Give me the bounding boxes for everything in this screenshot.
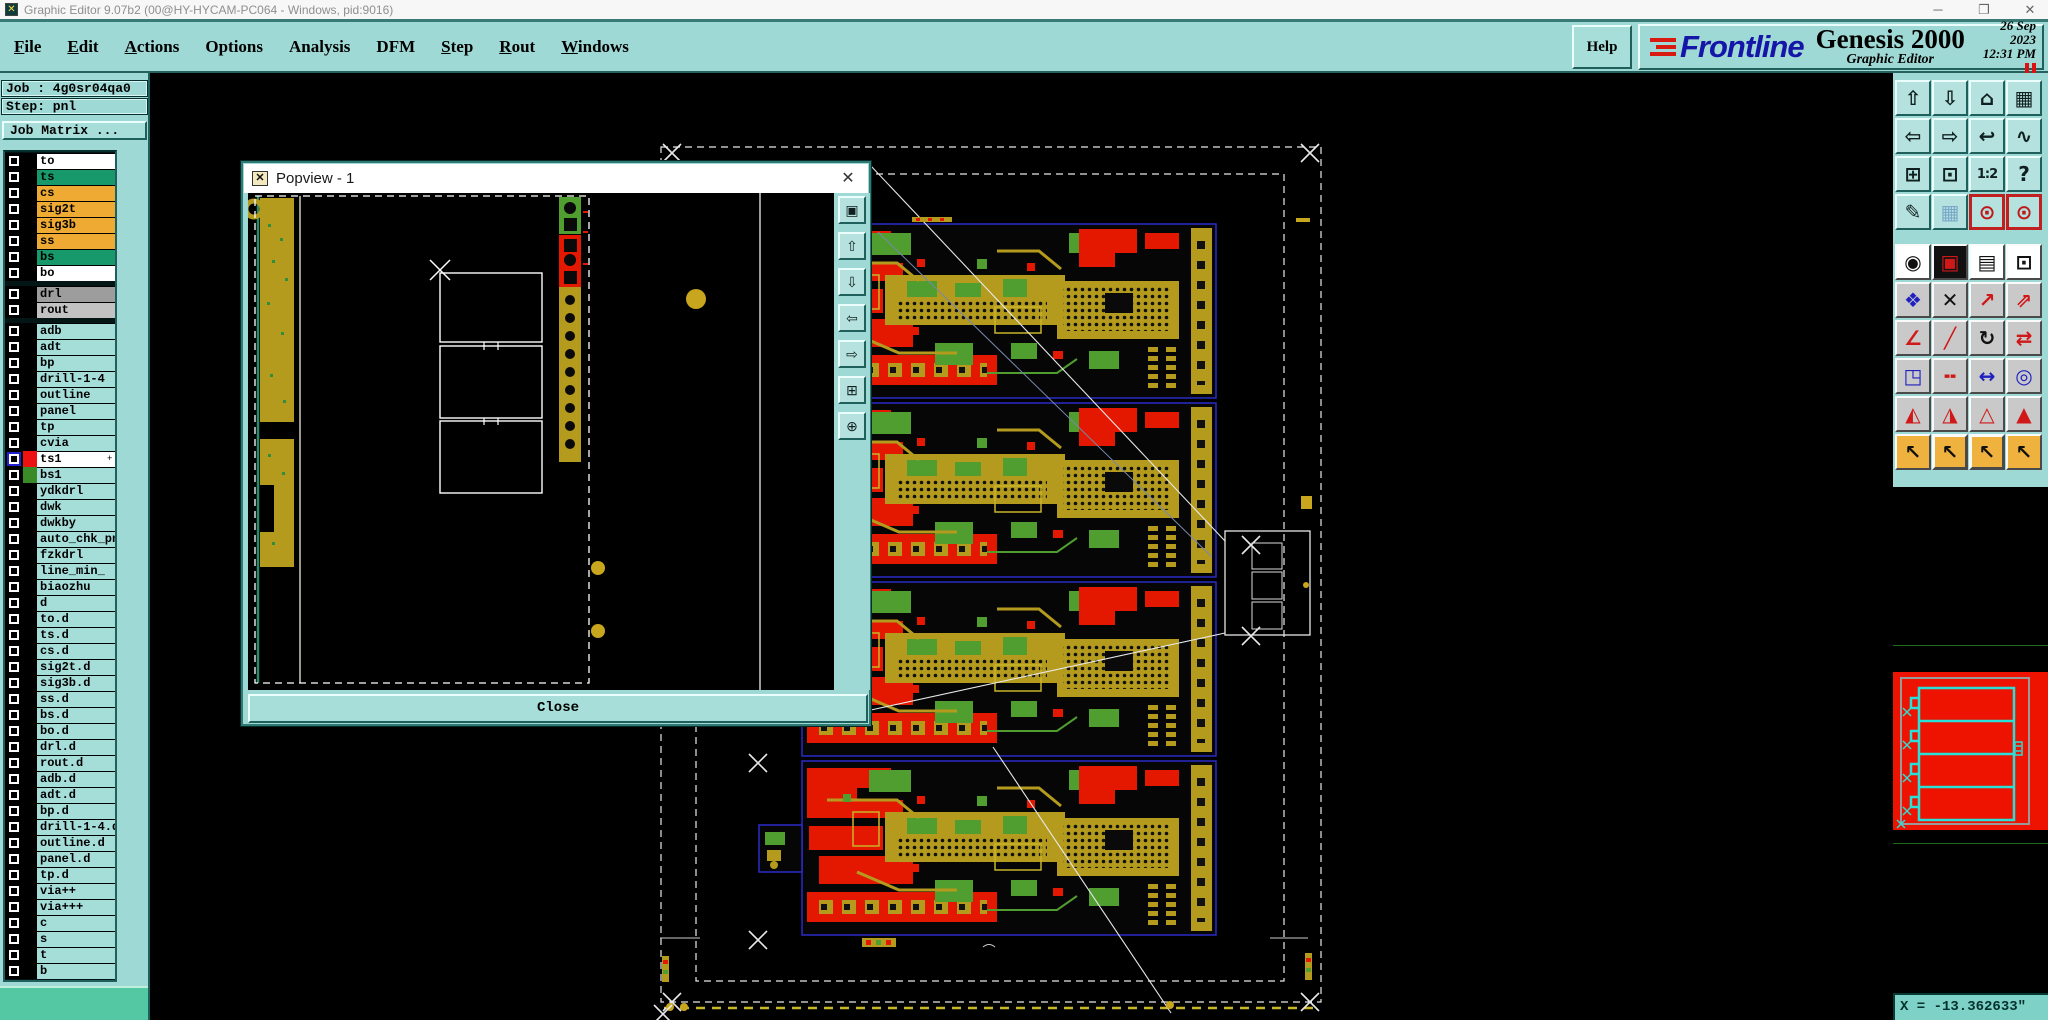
close-icon[interactable]: ✕ bbox=[2022, 2, 2038, 18]
layer-color-swatch bbox=[23, 867, 37, 883]
layer-visibility-checkbox[interactable] bbox=[9, 822, 19, 832]
deselect-icon[interactable]: ✕ bbox=[1932, 282, 1968, 318]
layer-color-swatch bbox=[23, 627, 37, 643]
layer-row[interactable]: c bbox=[5, 915, 115, 931]
layer-row[interactable]: adb bbox=[5, 323, 115, 339]
layer-color-swatch bbox=[23, 883, 37, 899]
layer-visibility-checkbox[interactable] bbox=[9, 220, 19, 230]
layer-color-swatch bbox=[23, 233, 37, 249]
minimize-icon[interactable]: ─ bbox=[1930, 2, 1946, 17]
popview-canvas[interactable] bbox=[248, 193, 834, 690]
layer-row[interactable]: adt bbox=[5, 339, 115, 355]
menu-item[interactable]: Step bbox=[441, 37, 473, 57]
layer-row[interactable]: biaozhu bbox=[5, 579, 115, 595]
zoom-ratio-icon[interactable]: 1:2 bbox=[1969, 156, 2005, 192]
layer-row[interactable]: drill-1-4 bbox=[5, 371, 115, 387]
layer-visibility-checkbox[interactable] bbox=[9, 268, 19, 278]
previous-view-icon[interactable]: ↩ bbox=[1969, 118, 2005, 154]
layer-color-swatch bbox=[23, 201, 37, 217]
layer-name[interactable]: bp bbox=[37, 356, 115, 371]
layer-visibility-checkbox[interactable] bbox=[9, 566, 19, 576]
popview-title: Popview - 1 bbox=[276, 170, 354, 187]
layer-row[interactable]: s bbox=[5, 931, 115, 947]
layer-visibility-checkbox[interactable] bbox=[9, 950, 19, 960]
layer-row[interactable]: tp.d bbox=[5, 867, 115, 883]
layer-row[interactable]: sig2t bbox=[5, 201, 115, 217]
overview-divider-top bbox=[1893, 645, 2048, 646]
layer-visibility-checkbox[interactable] bbox=[9, 236, 19, 246]
layer-color-swatch bbox=[23, 249, 37, 265]
cursor-select-icon[interactable]: ↖ bbox=[1895, 434, 1931, 470]
pan-left-icon[interactable]: ⇦ bbox=[1895, 118, 1931, 154]
layer-row[interactable]: cs bbox=[5, 185, 115, 201]
job-matrix-button[interactable]: Job Matrix ... bbox=[2, 121, 147, 140]
arc-peak-d-icon[interactable]: ▲ bbox=[2006, 396, 2042, 432]
layer-name[interactable]: sig2t bbox=[37, 202, 115, 217]
mirror-icon[interactable]: ⇄ bbox=[2006, 320, 2042, 356]
popview-dialog: ✕ Popview - 1 ✕ bbox=[241, 161, 871, 726]
layer-visibility-checkbox[interactable] bbox=[9, 598, 19, 608]
layer-row[interactable]: drl bbox=[5, 286, 115, 302]
layer-color-swatch bbox=[23, 467, 37, 483]
layer-name[interactable]: to bbox=[37, 154, 115, 169]
app-icon: ✕ bbox=[5, 3, 18, 16]
layer-name[interactable]: bo bbox=[37, 266, 115, 281]
layer-visibility-checkbox[interactable] bbox=[9, 422, 19, 432]
layer-name[interactable]: ts bbox=[37, 170, 115, 185]
zoom-target-icon[interactable]: ⊕ bbox=[838, 412, 866, 440]
layer-color-swatch bbox=[23, 435, 37, 451]
layer-color-swatch bbox=[23, 483, 37, 499]
crosshair-cursor bbox=[654, 1005, 672, 1020]
layer-name[interactable]: bs1 bbox=[37, 468, 115, 483]
layer-name[interactable]: sig3b bbox=[37, 218, 115, 233]
break-line-icon[interactable]: ╍ bbox=[1932, 358, 1968, 394]
popview-selection-rect bbox=[255, 196, 589, 683]
layer-color-swatch bbox=[23, 963, 37, 979]
layer-visibility-checkbox[interactable] bbox=[9, 710, 19, 720]
layer-visibility-checkbox[interactable] bbox=[9, 374, 19, 384]
layer-name[interactable]: b bbox=[37, 964, 115, 979]
net-cursor-icon[interactable]: ↖ bbox=[2006, 434, 2042, 470]
layer-name[interactable]: ts1 bbox=[37, 452, 115, 467]
pan-up-icon[interactable]: ⇧ bbox=[1895, 80, 1931, 116]
layer-row[interactable]: to.d bbox=[5, 611, 115, 627]
layer-color-swatch bbox=[23, 371, 37, 387]
layer-visibility-checkbox[interactable] bbox=[9, 390, 19, 400]
layer-visibility-checkbox[interactable] bbox=[9, 326, 19, 336]
layer-row[interactable]: rout.d bbox=[5, 755, 115, 771]
panel-overview-thumbnail[interactable] bbox=[1893, 672, 2048, 830]
via-display-a-icon[interactable]: ⊙ bbox=[1969, 194, 2005, 230]
layer-name[interactable]: adt bbox=[37, 340, 115, 355]
layer-name[interactable]: panel bbox=[37, 404, 115, 419]
arc-peak-a-icon[interactable]: ◭ bbox=[1895, 396, 1931, 432]
layer-visibility-checkbox[interactable] bbox=[9, 854, 19, 864]
layer-row[interactable]: ss bbox=[5, 233, 115, 249]
menu-item[interactable]: Windows bbox=[561, 37, 629, 57]
layer-row[interactable]: drill-1-4.d bbox=[5, 819, 115, 835]
pan-right-icon[interactable]: ⇨ bbox=[1932, 118, 1968, 154]
layer-row[interactable]: sig3b.d bbox=[5, 675, 115, 691]
layer-visibility-checkbox[interactable] bbox=[9, 550, 19, 560]
maximize-icon[interactable]: ❐ bbox=[1976, 2, 1992, 18]
layer-row[interactable]: dwk bbox=[5, 499, 115, 515]
pan-down-icon[interactable]: ⇩ bbox=[1932, 80, 1968, 116]
layer-visibility-checkbox[interactable] bbox=[9, 694, 19, 704]
layer-row[interactable]: ydkdrl bbox=[5, 483, 115, 499]
layer-name[interactable]: rout.d bbox=[37, 756, 115, 771]
layer-row[interactable]: rout bbox=[5, 302, 115, 318]
pan-up-icon[interactable]: ⇧ bbox=[838, 232, 866, 260]
copy-to-icon[interactable]: ↗ bbox=[1969, 282, 2005, 318]
layer-row[interactable]: bo bbox=[5, 265, 115, 281]
layer-color-swatch bbox=[23, 286, 37, 302]
brand-panel: Frontline Genesis 2000 Graphic Editor 26… bbox=[1638, 24, 2044, 70]
layer-visibility-checkbox[interactable] bbox=[9, 518, 19, 528]
line-angle-icon[interactable]: ∠ bbox=[1895, 320, 1931, 356]
layer-color-swatch bbox=[23, 595, 37, 611]
layer-name[interactable]: line_min_ bbox=[37, 564, 115, 579]
arc-peak-c-icon[interactable]: △ bbox=[1969, 396, 2005, 432]
frontline-logo: Frontline bbox=[1680, 29, 1804, 65]
layer-name[interactable]: outline bbox=[37, 388, 115, 403]
layer-visibility-checkbox[interactable] bbox=[9, 918, 19, 928]
layer-visibility-checkbox[interactable] bbox=[9, 172, 19, 182]
layer-name[interactable]: drill-1-4 bbox=[37, 372, 115, 387]
layer-row[interactable]: bp bbox=[5, 355, 115, 371]
popview-toolbar: ▣⇧⇩⇦⇨⊞⊕ bbox=[834, 193, 870, 690]
zoom-center-icon[interactable]: ⊡ bbox=[1932, 156, 1968, 192]
layer-visibility-checkbox[interactable] bbox=[9, 630, 19, 640]
layer-color-swatch bbox=[23, 419, 37, 435]
layer-name[interactable]: rout bbox=[37, 303, 115, 318]
layer-color-swatch bbox=[23, 691, 37, 707]
step-label: Step: pnl bbox=[1, 98, 148, 115]
layer-row[interactable]: sig3b bbox=[5, 217, 115, 233]
window-titlebar: ✕ Graphic Editor 9.07b2 (00@HY-HYCAM-PC0… bbox=[0, 0, 2048, 19]
layer-visibility-checkbox[interactable] bbox=[9, 838, 19, 848]
overview-pane[interactable] bbox=[1893, 487, 2048, 993]
menu-item[interactable]: DFM bbox=[376, 37, 415, 57]
layer-name[interactable]: adb bbox=[37, 324, 115, 339]
layer-list: to ts cs sig2t sig3b ss bbox=[3, 150, 117, 982]
layer-visibility-checkbox[interactable] bbox=[9, 582, 19, 592]
overview-divider-bottom bbox=[1893, 843, 2048, 844]
layer-color-swatch bbox=[23, 915, 37, 931]
layer-row[interactable]: bs bbox=[5, 249, 115, 265]
menubar: FileEditActionsOptionsAnalysisDFMStepRou… bbox=[0, 19, 2048, 73]
poly-select-icon[interactable]: ↖ bbox=[1969, 434, 2005, 470]
layer-color-swatch bbox=[23, 579, 37, 595]
layer-visibility-checkbox[interactable] bbox=[9, 305, 19, 315]
layer-visibility-checkbox[interactable] bbox=[9, 406, 19, 416]
layer-visibility-checkbox[interactable] bbox=[9, 204, 19, 214]
layer-visibility-checkbox[interactable] bbox=[9, 902, 19, 912]
layer-color-swatch bbox=[23, 851, 37, 867]
layer-name[interactable]: outline.d bbox=[37, 836, 115, 851]
layer-color-swatch bbox=[23, 931, 37, 947]
layer-row[interactable]: to bbox=[5, 153, 115, 169]
layer-name[interactable]: auto_chk_pn bbox=[37, 532, 115, 547]
layer-row[interactable]: bp.d bbox=[5, 803, 115, 819]
product-name: Genesis 2000 bbox=[1816, 26, 1965, 52]
layer-color-swatch bbox=[23, 707, 37, 723]
layer-color-swatch bbox=[23, 217, 37, 233]
layer-color-swatch bbox=[23, 899, 37, 915]
frame-select-icon[interactable]: ↖ bbox=[1932, 434, 1968, 470]
layer-name[interactable]: panel.d bbox=[37, 852, 115, 867]
layer-name[interactable]: fzkdrl bbox=[37, 548, 115, 563]
setup-tools-icon[interactable]: ✎ bbox=[1895, 194, 1931, 230]
date-label: 26 Sep 2023 bbox=[1973, 19, 2036, 47]
layer-color-swatch bbox=[23, 153, 37, 169]
frontline-speedlines-icon bbox=[1650, 38, 1676, 56]
layer-row[interactable]: ts1 + bbox=[5, 451, 115, 467]
layer-visibility-checkbox[interactable] bbox=[9, 342, 19, 352]
layer-name[interactable]: tp bbox=[37, 420, 115, 435]
layer-row[interactable]: drl.d bbox=[5, 739, 115, 755]
layer-row[interactable]: outline.d bbox=[5, 835, 115, 851]
layer-color-swatch bbox=[23, 835, 37, 851]
zoom-fit-icon[interactable]: ⊞ bbox=[838, 376, 866, 404]
layer-name[interactable]: sig2t.d bbox=[37, 660, 115, 675]
transform-select-icon[interactable]: ◉ bbox=[1895, 244, 1931, 280]
layer-name[interactable]: cs.d bbox=[37, 644, 115, 659]
layer-color-swatch bbox=[23, 531, 37, 547]
layer-name[interactable]: bs.d bbox=[37, 708, 115, 723]
layer-color-swatch bbox=[23, 611, 37, 627]
cursor-x-readout: X = -13.362633" bbox=[1893, 993, 2048, 1020]
layer-color-swatch bbox=[23, 355, 37, 371]
layer-color-swatch bbox=[23, 265, 37, 281]
layer-name[interactable]: ss.d bbox=[37, 692, 115, 707]
layer-visibility-checkbox[interactable] bbox=[9, 806, 19, 816]
layer-visibility-checkbox[interactable] bbox=[9, 758, 19, 768]
layer-color-swatch bbox=[23, 755, 37, 771]
layer-visibility-checkbox[interactable] bbox=[9, 470, 19, 480]
layer-name[interactable]: dwk bbox=[37, 500, 115, 515]
layer-row[interactable]: panel bbox=[5, 403, 115, 419]
layer-row[interactable]: via+++ bbox=[5, 899, 115, 915]
layer-color-swatch bbox=[23, 547, 37, 563]
layer-visibility-checkbox[interactable] bbox=[9, 662, 19, 672]
layer-color-swatch bbox=[23, 563, 37, 579]
layer-row[interactable]: ts bbox=[5, 169, 115, 185]
layer-visibility-checkbox[interactable] bbox=[9, 726, 19, 736]
zoom-extents-icon[interactable]: ⊞ bbox=[1895, 156, 1931, 192]
layer-row[interactable]: bo.d bbox=[5, 723, 115, 739]
layer-row[interactable]: cvia bbox=[5, 435, 115, 451]
layer-color-swatch bbox=[23, 403, 37, 419]
menu-item[interactable]: File bbox=[14, 37, 41, 57]
layer-color-swatch bbox=[23, 323, 37, 339]
menu-item[interactable]: Edit bbox=[67, 37, 98, 57]
layer-color-swatch bbox=[23, 387, 37, 403]
layer-name[interactable]: c bbox=[37, 916, 115, 931]
layer-row[interactable]: via++ bbox=[5, 883, 115, 899]
window-title: Graphic Editor 9.07b2 (00@HY-HYCAM-PC064… bbox=[24, 3, 393, 17]
layer-color-swatch bbox=[23, 339, 37, 355]
layer-color-swatch bbox=[23, 451, 37, 467]
layer-color-swatch bbox=[23, 169, 37, 185]
popview-window-icon: ✕ bbox=[252, 171, 268, 186]
layer-name[interactable]: sig3b.d bbox=[37, 676, 115, 691]
layer-row[interactable]: d bbox=[5, 595, 115, 611]
window-xy-icon[interactable]: ▦ bbox=[2006, 80, 2042, 116]
layer-compare-icon[interactable]: ▣ bbox=[1932, 244, 1968, 280]
layer-name[interactable]: cvia bbox=[37, 436, 115, 451]
layer-visibility-checkbox[interactable] bbox=[9, 966, 19, 976]
popout-window-icon[interactable]: ▣ bbox=[838, 196, 866, 224]
layer-name[interactable]: adb.d bbox=[37, 772, 115, 787]
menu-item[interactable]: Options bbox=[205, 37, 263, 57]
layer-visibility-checkbox[interactable] bbox=[9, 486, 19, 496]
layer-color-swatch bbox=[23, 947, 37, 963]
layer-visibility-checkbox[interactable] bbox=[9, 156, 19, 166]
layer-name[interactable]: biaozhu bbox=[37, 580, 115, 595]
layer-row[interactable]: ts.d bbox=[5, 627, 115, 643]
layer-name[interactable]: s bbox=[37, 932, 115, 947]
layer-visibility-checkbox[interactable] bbox=[9, 502, 19, 512]
layer-color-swatch bbox=[23, 643, 37, 659]
layer-name[interactable]: tp.d bbox=[37, 868, 115, 883]
menu-item[interactable]: Rout bbox=[499, 37, 535, 57]
popview-drawing bbox=[248, 193, 834, 690]
layer-color-swatch bbox=[23, 771, 37, 787]
via-display-b-icon[interactable]: ⊙ bbox=[2006, 194, 2042, 230]
layer-visibility-checkbox[interactable] bbox=[9, 870, 19, 880]
layer-visibility-checkbox[interactable] bbox=[9, 774, 19, 784]
layer-row[interactable]: ss.d bbox=[5, 691, 115, 707]
layer-name[interactable]: ss bbox=[37, 234, 115, 249]
layer-visibility-checkbox[interactable] bbox=[9, 886, 19, 896]
menu-item[interactable]: Actions bbox=[125, 37, 180, 57]
layer-row[interactable]: t bbox=[5, 947, 115, 963]
sidebar: Job : 4g0sr04qa0 Step: pnl Job Matrix ..… bbox=[0, 73, 150, 1020]
line-slant-icon[interactable]: ╱ bbox=[1932, 320, 1968, 356]
home-view-icon[interactable]: ⌂ bbox=[1969, 80, 2005, 116]
job-label: Job : 4g0sr04qa0 bbox=[1, 80, 148, 97]
layer-visibility-checkbox[interactable] bbox=[9, 252, 19, 262]
layer-name[interactable]: drl.d bbox=[37, 740, 115, 755]
layer-row[interactable]: sig2t.d bbox=[5, 659, 115, 675]
layer-visibility-checkbox[interactable] bbox=[9, 742, 19, 752]
layer-name[interactable]: ts.d bbox=[37, 628, 115, 643]
menu-item[interactable]: Analysis bbox=[289, 37, 350, 57]
layer-color-swatch bbox=[23, 185, 37, 201]
layer-color-swatch bbox=[23, 723, 37, 739]
layer-color-swatch bbox=[23, 739, 37, 755]
layer-name[interactable]: drill-1-4.d bbox=[37, 820, 115, 835]
layer-name[interactable]: dwkby bbox=[37, 516, 115, 531]
layer-row[interactable]: tp bbox=[5, 419, 115, 435]
move-to-icon[interactable]: ⇗ bbox=[2006, 282, 2042, 318]
layer-name[interactable]: bp.d bbox=[37, 804, 115, 819]
sidebar-footer bbox=[0, 986, 148, 1020]
layer-visibility-checkbox[interactable] bbox=[9, 454, 19, 464]
layer-color-swatch bbox=[23, 787, 37, 803]
grid-toggle-icon[interactable]: ▦ bbox=[1932, 194, 1968, 230]
layer-visibility-checkbox[interactable] bbox=[9, 646, 19, 656]
ruler-measure-icon[interactable]: ▤ bbox=[1969, 244, 2005, 280]
layer-name[interactable]: bo.d bbox=[37, 724, 115, 739]
layer-name[interactable]: drl bbox=[37, 287, 115, 302]
layer-color-swatch bbox=[23, 499, 37, 515]
layer-color-swatch bbox=[23, 819, 37, 835]
layer-name[interactable]: via+++ bbox=[37, 900, 115, 915]
layer-row[interactable]: auto_chk_pn bbox=[5, 531, 115, 547]
pan-right-icon[interactable]: ⇨ bbox=[838, 340, 866, 368]
layer-visibility-checkbox[interactable] bbox=[9, 534, 19, 544]
layer-visibility-checkbox[interactable] bbox=[9, 358, 19, 368]
popview-titlebar[interactable]: ✕ Popview - 1 ✕ bbox=[244, 164, 868, 193]
layer-name[interactable]: d bbox=[37, 596, 115, 611]
layer-row[interactable]: adt.d bbox=[5, 787, 115, 803]
popview-region-indicator bbox=[1225, 531, 1310, 645]
layer-row[interactable]: line_min_ bbox=[5, 563, 115, 579]
layer-visibility-checkbox[interactable] bbox=[9, 934, 19, 944]
layer-row[interactable]: outline bbox=[5, 387, 115, 403]
help-button[interactable]: Help bbox=[1572, 25, 1632, 69]
surface-circles-icon[interactable]: ◎ bbox=[2006, 358, 2042, 394]
layer-name[interactable]: to.d bbox=[37, 612, 115, 627]
layer-name[interactable]: adt.d bbox=[37, 788, 115, 803]
measure-distance-icon[interactable]: ↔ bbox=[1969, 358, 2005, 394]
arc-peak-b-icon[interactable]: ◮ bbox=[1932, 396, 1968, 432]
scroll-path-icon[interactable]: ∿ bbox=[2006, 118, 2042, 154]
layer-row[interactable]: fzkdrl bbox=[5, 547, 115, 563]
layer-visibility-checkbox[interactable] bbox=[9, 614, 19, 624]
layer-color-swatch bbox=[23, 803, 37, 819]
time-label: 12:31 PM bbox=[1973, 47, 2036, 61]
layer-name[interactable]: t bbox=[37, 948, 115, 963]
layer-visibility-checkbox[interactable] bbox=[9, 289, 19, 299]
layer-color-swatch bbox=[23, 675, 37, 691]
layer-row[interactable]: bs1 bbox=[5, 467, 115, 483]
layer-row[interactable]: panel.d bbox=[5, 851, 115, 867]
layer-name[interactable]: ydkdrl bbox=[37, 484, 115, 499]
layer-row[interactable]: cs.d bbox=[5, 643, 115, 659]
popview-close-button[interactable]: Close bbox=[248, 694, 868, 723]
rotate-icon[interactable]: ↻ bbox=[1969, 320, 2005, 356]
layer-visibility-checkbox[interactable] bbox=[9, 188, 19, 198]
pad-capture-icon[interactable]: ⊡ bbox=[2006, 244, 2042, 280]
layer-color-swatch bbox=[23, 659, 37, 675]
layer-name[interactable]: via++ bbox=[37, 884, 115, 899]
layer-row[interactable]: bs.d bbox=[5, 707, 115, 723]
layer-row[interactable]: adb.d bbox=[5, 771, 115, 787]
swap-origin-icon[interactable]: ◳ bbox=[1895, 358, 1931, 394]
layer-color-swatch bbox=[23, 515, 37, 531]
layer-name[interactable]: cs bbox=[37, 186, 115, 201]
layer-visibility-checkbox[interactable] bbox=[9, 438, 19, 448]
popview-close-icon[interactable]: ✕ bbox=[838, 168, 858, 188]
net-chain-icon[interactable]: ❖ bbox=[1895, 282, 1931, 318]
right-toolbar-panel: ⇧ ⇩ ⌂ ▦ ⇦ ⇨ ↩ ∿ ⊞ ⊡ 1:2 ? ✎ ▦ ⊙ ⊙ bbox=[1893, 73, 2048, 1020]
product-subtitle: Graphic Editor bbox=[1816, 52, 1965, 68]
layer-visibility-checkbox[interactable] bbox=[9, 790, 19, 800]
query-help-icon[interactable]: ? bbox=[2006, 156, 2042, 192]
layer-row[interactable]: b bbox=[5, 963, 115, 979]
pcb-board-row-4 bbox=[759, 761, 1216, 935]
layer-visibility-checkbox[interactable] bbox=[9, 678, 19, 688]
layer-row[interactable]: dwkby bbox=[5, 515, 115, 531]
layer-color-swatch bbox=[23, 302, 37, 318]
pan-left-icon[interactable]: ⇦ bbox=[838, 304, 866, 332]
layer-name[interactable]: bs bbox=[37, 250, 115, 265]
pan-down-icon[interactable]: ⇩ bbox=[838, 268, 866, 296]
